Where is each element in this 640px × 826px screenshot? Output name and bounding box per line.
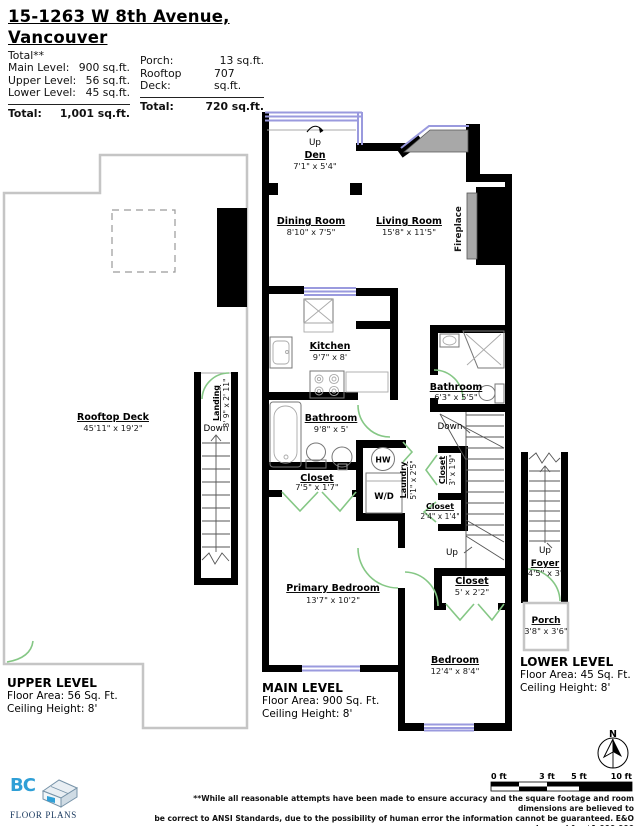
up-stairs-label: Up [446, 548, 458, 558]
level-title: UPPER LEVEL [7, 677, 118, 690]
north-compass: N [598, 729, 628, 768]
logo-bc-text: BC [10, 777, 35, 795]
upper-level-label: UPPER LEVEL Floor Area: 56 Sq. Ft. Ceili… [7, 677, 118, 715]
laundry-label: Laundry [399, 461, 408, 499]
level-title: LOWER LEVEL [520, 656, 631, 669]
laundry-dims: 5'1" x 2'5" [409, 460, 418, 499]
fireplace: Fireplace [454, 193, 477, 259]
kitchen-label: Kitchen [310, 341, 351, 352]
hw-label: HW [375, 456, 391, 465]
scale-label-3: 3 ft [539, 772, 555, 781]
floor-plan-page: 15-1263 W 8th Avenue, Vancouver Total** … [0, 0, 640, 826]
bathtub [270, 402, 301, 467]
bedroom-dims: 12'4" x 8'4" [431, 666, 480, 676]
skylight-dashed [112, 210, 175, 272]
scale-label-5: 5 ft [571, 772, 587, 781]
lower-level-label: LOWER LEVEL Floor Area: 45 Sq. Ft. Ceili… [520, 656, 631, 694]
closet-bedroom-label: Closet [455, 576, 489, 587]
closet-bedroom-dims: 5' x 2'2" [455, 587, 490, 597]
scale-bar: 0 ft 3 ft 5 ft 10 ft [491, 772, 632, 791]
bathroom-main-label: Bathroom [305, 413, 358, 424]
landing-label: Landing [212, 385, 221, 421]
primary-bedroom-label: Primary Bedroom [286, 583, 380, 594]
down-stairs-label: Down [438, 422, 463, 432]
landing-dims: 3' 9" x 2' 11" [222, 379, 231, 428]
foyer-stairs: Up Foyer 4'5" x 3' Porch 3'8" x 3'6" [521, 452, 568, 650]
disclaimer-line: be correct to ANSI Standards, due to the… [152, 814, 634, 826]
closet-stairs-label: Closet [438, 456, 447, 484]
fireplace-label: Fireplace [454, 206, 464, 252]
den-label: Den [304, 150, 325, 161]
counter [346, 372, 388, 392]
bathroom-main-dims: 9'8" x 5' [314, 424, 348, 434]
rooftop-deck-label: Rooftop Deck [77, 412, 150, 423]
level-area: Floor Area: 900 Sq. Ft. [262, 695, 379, 708]
logo-floor-plans-text: FLOOR PLANS [10, 810, 120, 820]
level-title: MAIN LEVEL [262, 682, 379, 695]
wd-label: W/D [374, 492, 394, 502]
deck-door-arc [7, 641, 33, 662]
primary-bedroom-dims: 13'7" x 10'2" [306, 595, 360, 605]
bathroom-upper-dims: 6'3" x 5'5" [434, 392, 478, 402]
level-ceiling: Ceiling Height: 8' [7, 703, 118, 716]
closet-small-dims: 2'4" x 1'4" [420, 512, 459, 521]
logo-house-icon [37, 777, 83, 809]
disclaimer: **While all reasonable attempts have bee… [152, 794, 634, 826]
rooftop-deck-outline [4, 155, 247, 728]
foyer-dims: 4'5" x 3' [528, 568, 562, 578]
bay-window [401, 126, 469, 152]
porch-label: Porch [532, 616, 561, 626]
deck-chimney-block [217, 208, 247, 307]
landing-stairs: Down Landing 3' 9" x 2' 11" [194, 372, 238, 585]
kitchen-dims: 9'7" x 8' [313, 352, 347, 362]
level-ceiling: Ceiling Height: 8' [520, 682, 631, 695]
living-room-label: Living Room [376, 216, 442, 227]
den-dims: 7'1" x 5'4" [293, 161, 337, 171]
main-stairs [440, 412, 504, 568]
bc-floor-plans-logo: BC FLOOR PLANS [10, 777, 120, 820]
dining-room-dims: 8'10" x 7'5" [287, 227, 336, 237]
up-den-label: Up [309, 138, 321, 148]
toilet [495, 384, 504, 403]
closet-stairs-dims: 3' x 1'9" [448, 454, 457, 485]
rooftop-deck-dims: 45'11" x 19'2" [83, 423, 143, 433]
porch-dims: 3'8" x 3'6" [524, 626, 568, 636]
toilet [307, 443, 326, 461]
landing-treads [202, 435, 230, 564]
level-ceiling: Ceiling Height: 8' [262, 708, 379, 721]
scale-label-0: 0 ft [491, 772, 507, 781]
scale-label-10: 10 ft [611, 772, 632, 781]
living-room-dims: 15'8" x 11'5" [382, 227, 436, 237]
up-foyer-label: Up [539, 546, 551, 556]
level-area: Floor Area: 45 Sq. Ft. [520, 669, 631, 682]
bedroom-label: Bedroom [431, 655, 479, 666]
level-area: Floor Area: 56 Sq. Ft. [7, 690, 118, 703]
main-level-label: MAIN LEVEL Floor Area: 900 Sq. Ft. Ceili… [262, 682, 379, 720]
laundry-fixtures: HW W/D [366, 448, 402, 514]
dining-room-label: Dining Room [277, 216, 345, 227]
closet-small-label: Closet [426, 502, 454, 511]
closet-hall-dims: 7'5" x 1'7" [295, 482, 339, 492]
disclaimer-line: **While all reasonable attempts have bee… [152, 794, 634, 814]
